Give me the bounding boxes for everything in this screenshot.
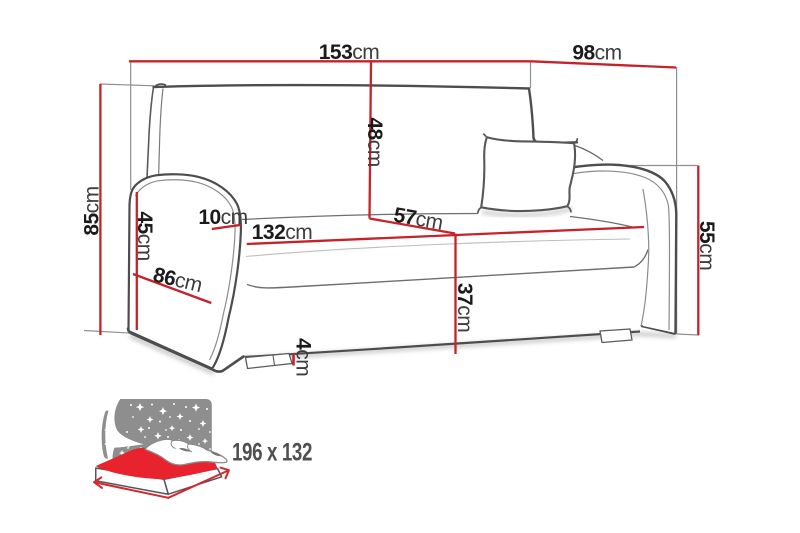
svg-text:37cm: 37cm bbox=[453, 283, 476, 332]
svg-text:132cm: 132cm bbox=[252, 221, 313, 244]
svg-text:45cm: 45cm bbox=[133, 211, 156, 260]
svg-text:10cm: 10cm bbox=[198, 206, 247, 229]
svg-text:48cm: 48cm bbox=[363, 117, 386, 166]
svg-text:4cm: 4cm bbox=[292, 338, 315, 376]
svg-text:55cm: 55cm bbox=[695, 221, 718, 270]
svg-text:153cm: 153cm bbox=[319, 41, 380, 64]
svg-text:85cm: 85cm bbox=[81, 186, 104, 235]
svg-text:98cm: 98cm bbox=[572, 42, 621, 65]
svg-text:196 x 132: 196 x 132 bbox=[232, 439, 312, 467]
